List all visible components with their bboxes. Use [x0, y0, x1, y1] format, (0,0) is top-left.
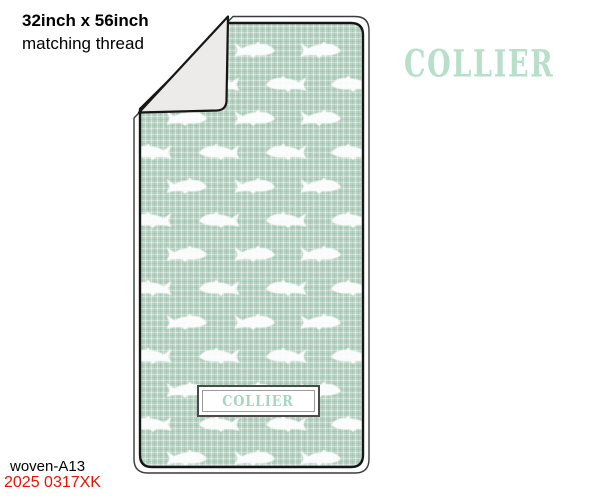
- sku-annotation: woven-A13: [10, 458, 85, 475]
- fish-icon: [99, 110, 140, 127]
- name-tag-text: COLLIER: [223, 392, 294, 410]
- proof-sheet: 32inch x 56inch matching thread COLLIER …: [0, 0, 600, 500]
- fish-icon: [99, 382, 140, 399]
- fish-icon: [99, 178, 140, 195]
- size-annotation: 32inch x 56inch: [22, 11, 149, 31]
- name-tag-inner-border: COLLIER: [202, 390, 315, 412]
- name-tag: COLLIER: [197, 385, 320, 417]
- brand-wordmark: COLLIER: [404, 42, 554, 86]
- fish-icon: [99, 450, 140, 467]
- fish-icon: [99, 314, 140, 331]
- fish-icon: [99, 246, 140, 263]
- date-code-annotation: 2025 0317XK: [4, 474, 101, 492]
- thread-annotation: matching thread: [22, 34, 144, 54]
